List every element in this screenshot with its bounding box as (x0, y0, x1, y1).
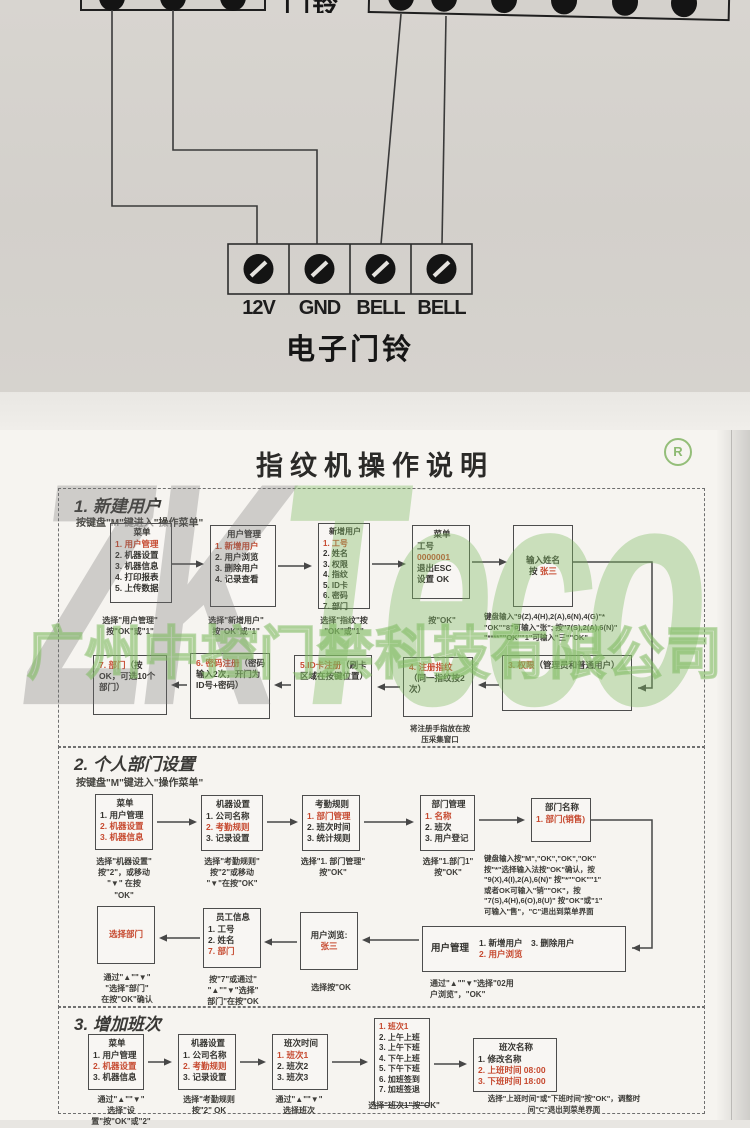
flow-caption-s2c8: 按"7"或通过""▲""▼"选择"部门"在按"OK (195, 974, 271, 1008)
flow-text: 1. 名称 (425, 811, 451, 821)
flow-box-label: 用户管理 (431, 943, 469, 955)
caption-line: 选择"新增用户" (192, 615, 280, 626)
flow-text: 6. 密码注册 (196, 658, 239, 668)
flow-box-s1b3: 新增用户1. 工号2. 姓名3. 权限4. 指纹5. ID卡6. 密码7. 部门 (318, 523, 370, 609)
flow-box-column: 1. 新增用户 3. 删除用户2. 用户浏览 (479, 938, 574, 960)
flow-box-line: 1. 工号 (208, 924, 258, 935)
caption-line: 选择"指纹"按 (304, 615, 384, 626)
flow-text: 1. 修改名称 (478, 1054, 521, 1064)
caption-line: 按"OK"或"1" (192, 626, 280, 637)
arrowhead-icon (171, 681, 179, 688)
flow-caption-s1c1: 选择"用户管理"按"OK"或"1" (88, 615, 172, 637)
flow-box-s2b8: 员工信息1. 工号2. 姓名7. 部门 (203, 908, 261, 968)
flow-box-paragraph: 5.ID卡注册（刷卡区域在按键位置） (299, 659, 369, 683)
flow-text: 2. 姓名 (323, 549, 348, 558)
flow-box-line: 1. 部门管理 (307, 811, 357, 822)
caption-line: 选择"机器设置" (88, 856, 160, 867)
flow-box-paragraph: 6. 密码注册（密码输入2次，开门为ID号+密码） (195, 657, 267, 692)
arrowhead-icon (459, 1060, 467, 1067)
caption-line: 按"*"选择输入法按"OK"确认，按 (484, 865, 700, 876)
flow-box-s3b3: 班次时间1. 班次12. 班次23. 班次3 (272, 1034, 328, 1090)
flow-box-line: 4. 下午上班 (379, 1054, 427, 1065)
flow-text: 7. 部门 (323, 602, 348, 611)
flow-box-line: 2. 机器设置 (115, 550, 169, 561)
flow-box-line: 1. 用户管理 (115, 539, 169, 550)
flow-box-s1b10: 7. 部门（按OK，可选10个部门） (93, 655, 167, 715)
caption-line: "OK""8"可输入"张"; 按"7(S),2(A),6(N)" (484, 623, 702, 634)
flow-text: 退出ESC (417, 563, 451, 573)
arrowhead-icon (304, 562, 312, 569)
arrowhead-icon (196, 560, 204, 567)
flow-box-line: 1. 工号 (323, 539, 367, 550)
flow-caption-s3c1: 通过"▲""▼"选择"设置"按"OK"或"2" (80, 1094, 162, 1128)
flow-box-line: 1. 名称 (425, 811, 472, 822)
caption-line: "OK"或"1" (304, 626, 384, 637)
caption-line: 将注册手指放在按 (398, 724, 482, 735)
flow-box-line: 7. 加班签退 (379, 1085, 427, 1096)
flow-box-line: 1. 班次1 (379, 1022, 427, 1033)
flow-text: 3. 机器信息 (93, 1072, 136, 1082)
flow-text: 3. 统计规则 (307, 833, 350, 843)
caption-line: 按"2"，或移动 (88, 867, 160, 878)
flow-text: 2. 机器设置 (100, 821, 143, 831)
flow-caption-s2c3: 选择"1. 部门管理"按"OK" (290, 856, 376, 878)
flow-box-s1b8: 5.ID卡注册（刷卡区域在按键位置） (294, 655, 372, 717)
flow-text: 2. 用户浏览 (479, 949, 522, 959)
arrowhead-icon (517, 816, 525, 823)
flow-box-line: 3. 记录设置 (206, 833, 260, 844)
flow-box-line: 3. 机器信息 (100, 832, 150, 843)
caption-line: 按"OK" (290, 867, 376, 878)
arrowhead-icon (362, 936, 370, 943)
page-fold-line (731, 430, 732, 1120)
flow-box-title: 菜单 (417, 529, 467, 540)
flow-box-s2b9: 选择部门 (97, 906, 155, 964)
flow-box-s2b1: 菜单1. 用户管理2. 机器设置3. 机器信息 (95, 794, 153, 850)
flow-box-s2b3: 考勤规则1. 部门管理2. 班次时间3. 统计规则 (302, 795, 360, 851)
caption-line: 选择"班次1"按"OK" (364, 1100, 444, 1111)
flow-text: 3. 删除用户 (215, 563, 258, 573)
caption-line: 选择"设置"按"OK"或"2" (80, 1105, 162, 1127)
arrowhead-icon (632, 944, 640, 951)
flow-text: 4. 记录查看 (215, 574, 258, 584)
flow-box-line: 1. 班次1 (277, 1050, 325, 1061)
flow-box-line: 设置 OK (417, 574, 467, 585)
flow-text: 1. 班次1 (379, 1022, 408, 1031)
caption-line: 通过"▲""▼" (264, 1094, 334, 1105)
flow-box-title: 菜单 (100, 798, 150, 809)
flow-text: 工号 (417, 541, 434, 551)
flow-box-line: 3. 删除用户 (215, 563, 273, 574)
caption-line: 按"2"或移动 (194, 867, 270, 878)
flow-text: 3. 记录设置 (206, 833, 249, 843)
flow-box-line: 2. 考勤规则 (206, 822, 260, 833)
flow-text: 3. 用户登记 (425, 833, 468, 843)
flow-text: （同一指纹按2次） (409, 673, 465, 694)
flow-text: 5. 下午下班 (379, 1064, 420, 1073)
flow-box-line: 6. 加班签到 (379, 1075, 427, 1086)
flow-caption-s3c5: 选择"上班时间"或"下班时间"按"OK"，调整时间"C"退出到菜单界面 (456, 1094, 672, 1115)
flow-caption-s2c1: 选择"机器设置"按"2"，或移动"▼" 在按"OK" (88, 856, 160, 901)
flow-text: 选择部门 (109, 929, 143, 939)
flow-box-paragraph: 4. 注册指纹（同一指纹按2次） (408, 661, 470, 696)
flow-box-line: 2. 用户浏览 (479, 949, 574, 960)
flow-text: 4. 指纹 (323, 570, 348, 579)
flow-box-line: 2. 上午上班 (379, 1033, 427, 1044)
caption-line: 按"OK" (414, 615, 470, 626)
flow-box-s2b2: 机器设置1. 公司名称2. 考勤规则3. 记录设置 (201, 795, 263, 851)
flow-box-title: 考勤规则 (307, 799, 357, 810)
flow-text: 6. 密码 (323, 591, 348, 600)
flow-box-line: 1. 新增用户 3. 删除用户 (479, 938, 574, 949)
caption-line: 或者OK可输入"销""OK"，按 (484, 886, 700, 897)
flow-text: 5. ID卡 (323, 581, 348, 590)
flow-box-line: 4. 打印报表 (115, 572, 169, 583)
flow-text: 1. 班次1 (277, 1050, 308, 1060)
caption-line: 选择"考勤规则" (194, 856, 270, 867)
flow-text: 用户浏览: (311, 930, 348, 940)
caption-line: 键盘输入按"M","OK","OK","OK" (484, 854, 700, 865)
caption-line: 通过"▲""▼" (90, 972, 164, 983)
arrowhead-icon (398, 560, 406, 567)
flow-caption-s3c2: 选择"考勤规则按"2" OK (172, 1094, 246, 1116)
caption-line: 在按"OK"确认 (90, 994, 164, 1005)
flow-box-line: 2. 机器设置 (100, 821, 150, 832)
arrowhead-icon (264, 938, 272, 945)
flow-box-line: 选择部门 (100, 929, 152, 940)
caption-line: 选择按"OK (300, 982, 362, 993)
flow-box-line: 4. 指纹 (323, 570, 367, 581)
flow-text: 3. 下班时间 18:00 (478, 1076, 546, 1086)
flow-box-line: 2. 班次2 (277, 1061, 325, 1072)
caption-line: "▲""▼"选择" (195, 985, 271, 996)
caption-line: 键盘输入"9(Z),4(H),2(A),6(N),4(G)"* (484, 612, 702, 623)
flow-box-line: 退出ESC (417, 563, 467, 574)
arrowhead-icon (290, 818, 298, 825)
caption-line: 部门"在按"OK (195, 996, 271, 1007)
arrowhead-icon (164, 1058, 172, 1065)
flow-box-line: 1. 部门(销售) (536, 814, 588, 825)
flow-text: 6. 加班签到 (379, 1075, 420, 1084)
flow-text: 2. 用户浏览 (215, 552, 258, 562)
flow-text: 1. 部门管理 (307, 811, 350, 821)
arrowhead-icon (638, 684, 646, 691)
caption-line: 选择"1. 部门管理" (290, 856, 376, 867)
flow-box-line: 3. 机器信息 (115, 561, 169, 572)
flow-box-s3b1: 菜单1. 用户管理2. 机器设置3. 机器信息 (88, 1034, 144, 1090)
flow-caption-s1c3: 选择"指纹"按"OK"或"1" (304, 615, 384, 637)
arrowhead-icon (274, 681, 282, 688)
flow-text: 2. 机器设置 (115, 550, 158, 560)
flow-text: 0000001 (417, 552, 450, 562)
flow-box-s1b7: 4. 注册指纹（同一指纹按2次） (403, 657, 473, 717)
flow-box-title: 机器设置 (183, 1038, 233, 1049)
flow-box-line: 3. 上午下班 (379, 1043, 427, 1054)
caption-line: 按"OK" (412, 867, 484, 878)
flow-text: 1. 工号 (208, 924, 234, 934)
flow-box-paragraph: 7. 部门（按OK，可选10个部门） (98, 659, 164, 694)
flow-box-s2b7: 用户浏览:张三 (300, 912, 358, 970)
flow-box-title: 班次时间 (277, 1038, 325, 1049)
flow-box-line: 1. 用户管理 (93, 1050, 141, 1061)
flow-box-line: 按 张三 (516, 566, 570, 577)
flow-box-line: 2. 考勤规则 (183, 1061, 233, 1072)
flow-text: 2. 考勤规则 (206, 822, 249, 832)
flow-box-line: 用户浏览: (303, 930, 355, 941)
flow-caption-s2c4: 选择"1.部门1"按"OK" (412, 856, 484, 878)
flow-box-line: 工号 (417, 541, 467, 552)
flow-text: 1. 部门(销售) (536, 814, 585, 824)
flow-box-s1b6: 3. 权限（管理员和普通用户） (502, 655, 632, 711)
flow-box-line: 1. 新增用户 (215, 541, 273, 552)
flow-text: 按 (529, 566, 540, 576)
flow-box-line: 3. 机器信息 (93, 1072, 141, 1083)
flow-text: 1. 用户管理 (115, 539, 158, 549)
flow-text: 2. 班次时间 (307, 822, 350, 832)
caption-line: 通过"▲""▼" (80, 1094, 162, 1105)
flow-text: 2. 上班时间 08:00 (478, 1065, 546, 1075)
flow-text: 1. 用户管理 (100, 810, 143, 820)
flow-box-title: 新增用户 (323, 527, 367, 538)
flow-box-title: 机器设置 (206, 799, 260, 810)
flow-box-line: 5. ID卡 (323, 581, 367, 592)
flow-box-s3b4: 1. 班次12. 上午上班3. 上午下班4. 下午上班5. 下午下班6. 加班签… (374, 1018, 430, 1106)
flow-box-line: 3. 记录设置 (183, 1072, 233, 1083)
flow-text: 张三 (320, 941, 337, 951)
arrowhead-icon (258, 1058, 266, 1065)
flow-box-title: 菜单 (115, 527, 169, 538)
flow-text: 4. 打印报表 (115, 572, 158, 582)
flow-box-line: 7. 部门 (323, 602, 367, 613)
flow-text: （管理员和普通用户） (534, 660, 619, 670)
flow-caption-s1c5: 键盘输入"9(Z),4(H),2(A),6(N),4(G)"*"OK""8"可输… (484, 612, 702, 644)
caption-line: "OK" (88, 890, 160, 901)
caption-line: "9(X),4(I),2(A),6(N)" 按"*""OK""1" (484, 875, 700, 886)
caption-line: 选择"用户管理" (88, 615, 172, 626)
flow-caption-s1c2: 选择"新增用户"按"OK"或"1" (192, 615, 280, 637)
flow-text: 2. 姓名 (208, 935, 234, 945)
flow-caption-s2c2: 选择"考勤规则"按"2"或移动"▼"在按"OK" (194, 856, 270, 890)
arrowhead-icon (499, 558, 507, 565)
flow-box-title: 部门名称 (536, 802, 588, 813)
flow-box-line: 2. 用户浏览 (215, 552, 273, 563)
arrowhead-icon (189, 818, 197, 825)
caption-line: 选择"考勤规则 (172, 1094, 246, 1105)
caption-line: 可输入"售"，"C"退出到菜单界面 (484, 907, 700, 918)
caption-line: 按"OK"或"1" (88, 626, 172, 637)
flow-box-s2b5: 部门名称1. 部门(销售) (531, 798, 591, 842)
flow-box-line: 3. 下班时间 18:00 (478, 1076, 554, 1087)
flow-box-line: 1. 修改名称 (478, 1054, 554, 1065)
flow-text: 1. 用户管理 (93, 1050, 136, 1060)
flow-text: 7. 部门 (208, 946, 234, 956)
arrowhead-icon (159, 934, 167, 941)
flow-box-s1b4: 菜单工号0000001退出ESC设置 OK (412, 525, 470, 599)
flow-box-line: 2. 上班时间 08:00 (478, 1065, 554, 1076)
flow-box-line: 1. 公司名称 (206, 811, 260, 822)
caption-line: 按"7"或通过" (195, 974, 271, 985)
flow-text: 1. 新增用户 3. 删除用户 (479, 938, 574, 948)
flow-text: 4. 注册指纹 (409, 662, 452, 672)
caption-line: 选择"上班时间"或"下班时间"按"OK"，调整时 (456, 1094, 672, 1105)
flow-text: 输入姓名 (526, 555, 560, 565)
flow-box-s3b2: 机器设置1. 公司名称2. 考勤规则3. 记录设置 (178, 1034, 236, 1090)
flow-box-line: 3. 用户登记 (425, 833, 472, 844)
arrowhead-icon (478, 681, 486, 688)
flow-text: 5. 上传数据 (115, 583, 158, 593)
flow-text: 1. 公司名称 (206, 811, 249, 821)
flow-caption-s1c6: 将注册手指放在按压采集窗口 (398, 724, 482, 745)
flow-text: 2. 班次2 (277, 1061, 308, 1071)
flow-caption-s2c6: 通过"▲""▼"选择"02用户浏览"，"OK" (430, 978, 602, 1000)
caption-line: 户浏览"，"OK" (430, 989, 602, 1000)
flow-text: 3. 权限 (323, 560, 348, 569)
caption-line: 选择"1.部门1" (412, 856, 484, 867)
flow-box-line: 0000001 (417, 552, 467, 563)
flow-box-line: 4. 记录查看 (215, 574, 273, 585)
flow-box-line: 5. 上传数据 (115, 583, 169, 594)
flow-box-line: 3. 权限 (323, 560, 367, 571)
flow-box-line: 2. 姓名 (323, 549, 367, 560)
caption-line: 通过"▲""▼"选择"02用 (430, 978, 602, 989)
flow-text: 2. 考勤规则 (183, 1061, 226, 1071)
caption-line: 按"2" OK (172, 1105, 246, 1116)
caption-line: "选择"部门" (90, 983, 164, 994)
flow-text: 3. 机器信息 (100, 832, 143, 842)
flow-text: 7. 加班签退 (379, 1085, 420, 1094)
arrowhead-icon (406, 818, 414, 825)
flow-text: 3. 权限 (508, 660, 534, 670)
flow-caption-s2c5: 键盘输入按"M","OK","OK","OK"按"*"选择输入法按"OK"确认，… (484, 854, 700, 917)
flow-text: 1. 新增用户 (215, 541, 258, 551)
flow-text: 5.ID卡注册 (300, 660, 341, 670)
flow-text: 1. 工号 (323, 539, 348, 548)
flow-text: 张三 (540, 566, 557, 576)
caption-line: 选择班次 (264, 1105, 334, 1116)
flow-text: 3. 上午下班 (379, 1043, 420, 1052)
flow-text: 2. 班次 (425, 822, 451, 832)
flow-box-line: 3. 统计规则 (307, 833, 357, 844)
flow-box-line: 输入姓名 (516, 555, 570, 566)
flow-box-line: 2. 机器设置 (93, 1061, 141, 1072)
caption-line: 间"C"退出到菜单界面 (456, 1105, 672, 1116)
flow-text: 3. 班次3 (277, 1072, 308, 1082)
flow-box-s1b1: 菜单1. 用户管理2. 机器设置3. 机器信息4. 打印报表5. 上传数据 (110, 523, 172, 603)
caption-line: "7(S),4(H),6(O),8(U)" 按"OK"或"1" (484, 896, 700, 907)
flow-box-s2b4: 部门管理1. 名称2. 班次3. 用户登记 (420, 795, 475, 851)
arrowhead-icon (360, 1058, 368, 1065)
flow-caption-s3c3: 通过"▲""▼"选择班次 (264, 1094, 334, 1116)
flow-text: 3. 机器信息 (115, 561, 158, 571)
flow-caption-s2c9: 通过"▲""▼""选择"部门"在按"OK"确认 (90, 972, 164, 1006)
flow-box-s1b5: 输入姓名按 张三 (513, 525, 573, 607)
flow-caption-s3c4: 选择"班次1"按"OK" (364, 1100, 444, 1111)
caption-line: "▼" 在按 (88, 878, 160, 889)
arrowhead-icon (377, 683, 385, 690)
flow-box-s1b2: 用户管理1. 新增用户2. 用户浏览3. 删除用户4. 记录查看 (210, 525, 276, 607)
flow-box-line: 张三 (303, 941, 355, 952)
flow-caption-s1c4: 按"OK" (414, 615, 470, 626)
flow-text: 2. 机器设置 (93, 1061, 136, 1071)
flow-box-line: 2. 班次时间 (307, 822, 357, 833)
flow-text: 4. 下午上班 (379, 1054, 420, 1063)
caption-line: 压采集窗口 (398, 735, 482, 746)
flow-text: 3. 记录设置 (183, 1072, 226, 1082)
flow-text: 2. 上午上班 (379, 1033, 420, 1042)
flow-box-line: 1. 用户管理 (100, 810, 150, 821)
flow-box-title: 班次名称 (478, 1042, 554, 1053)
flow-box-title: 菜单 (93, 1038, 141, 1049)
flow-caption-s2c7: 选择按"OK (300, 982, 362, 993)
flow-box-s1b9: 6. 密码注册（密码输入2次，开门为ID号+密码） (190, 653, 270, 719)
flow-box-line: 3. 班次3 (277, 1072, 325, 1083)
flow-text: 7. 部门 (99, 660, 125, 670)
flow-box-line: 2. 班次 (425, 822, 472, 833)
flow-box-line: 2. 姓名 (208, 935, 258, 946)
flow-text: 1. 公司名称 (183, 1050, 226, 1060)
flow-box-paragraph: 3. 权限（管理员和普通用户） (507, 659, 629, 672)
flow-box-s3b5: 班次名称1. 修改名称2. 上班时间 08:003. 下班时间 18:00 (473, 1038, 557, 1092)
flow-box-line: 1. 公司名称 (183, 1050, 233, 1061)
flow-box-s2b6: 用户管理1. 新增用户 3. 删除用户2. 用户浏览 (422, 926, 626, 972)
flow-box-title: 用户管理 (215, 529, 273, 540)
page-fold-shadow (716, 430, 750, 1120)
flow-box-line: 7. 部门 (208, 946, 258, 957)
caption-line: "▼"在按"OK" (194, 878, 270, 889)
flow-box-title: 部门管理 (425, 799, 472, 810)
flow-box-title: 员工信息 (208, 912, 258, 923)
flow-text: 设置 OK (417, 574, 449, 584)
flow-box-line: 6. 密码 (323, 591, 367, 602)
caption-line: "****""OK""1"可输入"三""OK" (484, 633, 702, 644)
flow-box-line: 5. 下午下班 (379, 1064, 427, 1075)
